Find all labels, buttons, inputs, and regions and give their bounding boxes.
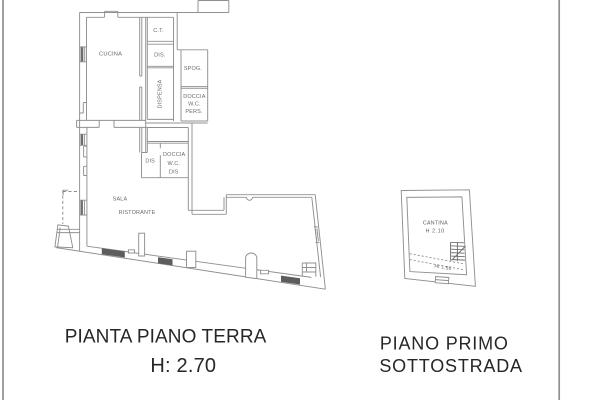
svg-text:SPOG.: SPOG. (184, 66, 202, 72)
svg-text:SALA: SALA (113, 197, 128, 203)
svg-text:C.T.: C.T. (153, 28, 164, 34)
svg-text:W.C.: W.C. (168, 161, 181, 167)
svg-text:CUCINA: CUCINA (99, 51, 122, 57)
svg-text:DIS.: DIS. (154, 53, 166, 59)
svg-text:H: 2.70: H: 2.70 (150, 355, 216, 377)
svg-text:DOCCIA: DOCCIA (183, 94, 205, 100)
svg-text:W.C.: W.C. (188, 102, 201, 108)
svg-text:PERS.: PERS. (185, 109, 203, 115)
svg-text:DIS: DIS (145, 159, 155, 165)
svg-text:DIS: DIS (169, 170, 179, 176)
svg-text:DOCCIA: DOCCIA (163, 152, 185, 158)
svg-text:SOTTOSTRADA: SOTTOSTRADA (379, 356, 522, 376)
svg-text:CANTINA: CANTINA (423, 221, 448, 227)
svg-text:H 2.10: H 2.10 (426, 229, 445, 235)
svg-text:RISTORANTE: RISTORANTE (119, 210, 156, 216)
svg-text:DISPENSA: DISPENSA (158, 79, 164, 108)
svg-text:Ht 1.50: Ht 1.50 (434, 264, 452, 273)
svg-text:PIANO PRIMO: PIANO PRIMO (380, 334, 509, 354)
svg-text:PIANTA PIANO TERRA: PIANTA PIANO TERRA (65, 327, 267, 348)
